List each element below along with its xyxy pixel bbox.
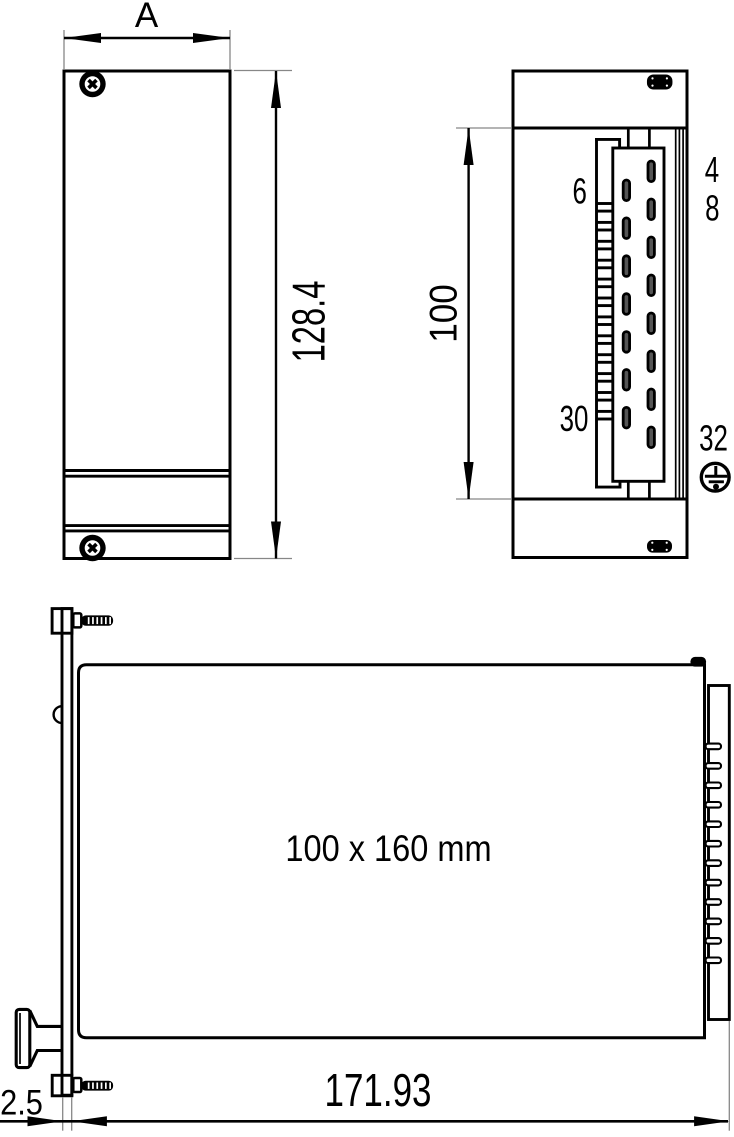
svg-text:A: A	[135, 0, 159, 35]
svg-text:8: 8	[705, 189, 719, 229]
svg-text:4: 4	[705, 150, 719, 190]
svg-text:6: 6	[572, 171, 586, 211]
svg-text:100 x 160 mm: 100 x 160 mm	[285, 828, 491, 869]
svg-text:2.5: 2.5	[0, 1083, 43, 1122]
svg-text:30: 30	[560, 399, 589, 439]
svg-text:32: 32	[699, 418, 728, 458]
svg-text:171.93: 171.93	[325, 1064, 432, 1116]
svg-text:128.4: 128.4	[284, 281, 335, 363]
svg-text:100: 100	[421, 284, 465, 343]
